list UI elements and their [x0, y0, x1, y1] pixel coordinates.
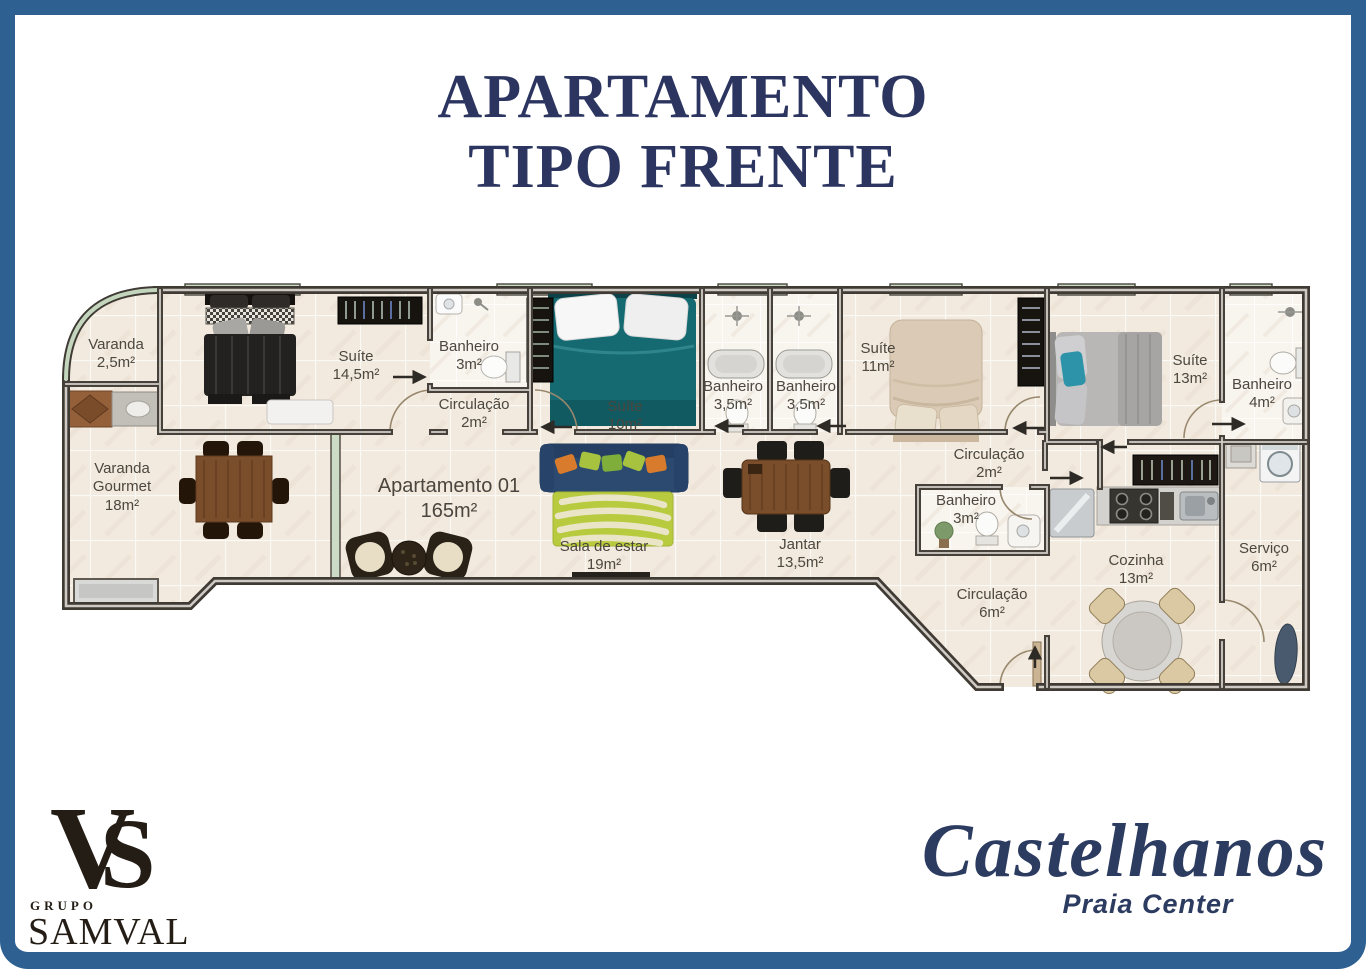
samval-logo: S V GRUPO SAMVAL: [26, 794, 226, 954]
wardrobe-suite-11: [1018, 298, 1044, 386]
apartment-label: Apartamento 01165m²: [349, 474, 549, 524]
room-label-varanda: Varanda2,5m²: [61, 336, 171, 373]
glass-partition: [331, 434, 340, 581]
monogram-v: V: [50, 780, 135, 916]
room-label-circulacao-2: Circulação2m²: [419, 396, 529, 433]
samval-name: SAMVAL: [28, 910, 196, 959]
page-title: APARTAMENTO TIPO FRENTE: [0, 62, 1366, 202]
room-label-cozinha: Cozinha13m²: [1086, 552, 1186, 589]
room-label-varanda-gourmet: Varanda Gourmet18m²: [79, 460, 165, 515]
project-logo: Castelhanos Praia Center: [905, 808, 1345, 920]
room-label-suite-10: Suíte10m²: [580, 398, 670, 435]
room-label-jantar: Jantar13,5m²: [750, 536, 850, 573]
kitchen-cabinet: [1133, 455, 1218, 485]
barbecue-area: [68, 391, 160, 427]
room-label-suite-11: Suíte11m²: [833, 340, 923, 377]
room-label-banheiro-35b: Banheiro3,5m²: [767, 378, 845, 415]
room-label-servico: Serviço6m²: [1219, 540, 1309, 577]
bed-suite-13: [1048, 332, 1162, 426]
title-line-1: APARTAMENTO: [0, 62, 1366, 132]
room-label-circulacao-2b: Circulação2m²: [934, 446, 1044, 483]
title-line-2: TIPO FRENTE: [0, 132, 1366, 202]
dresser: [267, 400, 333, 424]
bed-suite-11: [890, 320, 982, 442]
room-label-banheiro-4: Banheiro4m²: [1217, 376, 1307, 413]
room-label-banheiro-3: Banheiro3m²: [424, 338, 514, 375]
gourmet-bench: [74, 579, 158, 603]
room-label-banheiro-35a: Banheiro3,5m²: [694, 378, 772, 415]
room-label-circulacao-6: Circulação6m²: [937, 586, 1047, 623]
room-label-sala-de-estar: Sala de estar19m²: [539, 538, 669, 575]
floorplan-page: APARTAMENTO TIPO FRENTE: [0, 0, 1366, 969]
sofa: [540, 444, 688, 492]
room-label-banheiro-3b: Banheiro3m²: [916, 492, 1016, 529]
room-label-suite-145: Suíte14,5m²: [311, 348, 401, 385]
project-name: Castelhanos: [905, 808, 1345, 895]
wardrobe-suite-145: [338, 297, 422, 324]
